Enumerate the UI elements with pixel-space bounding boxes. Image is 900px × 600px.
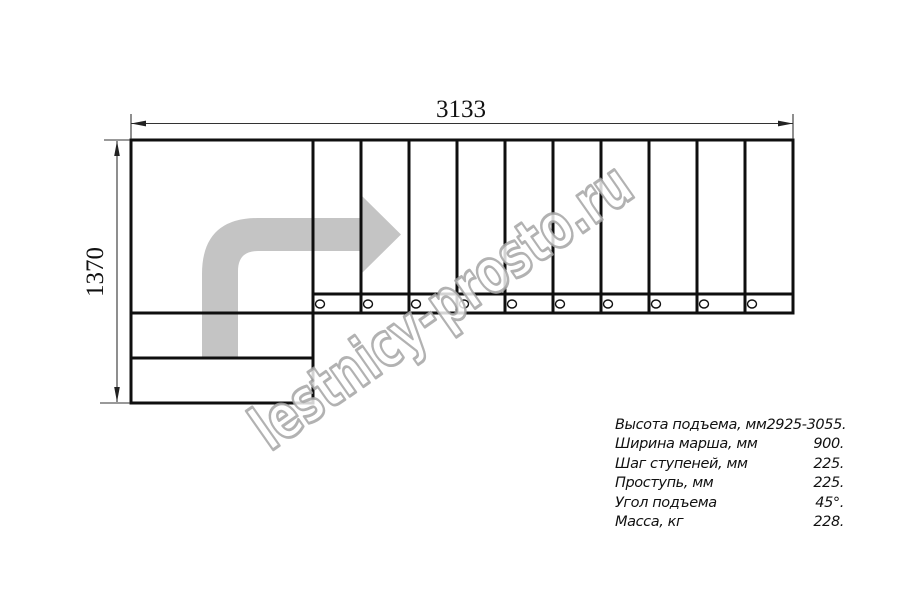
width-dimension-label: 3133 xyxy=(436,96,486,123)
fastener-circle xyxy=(748,300,757,308)
spec-value: 45°. xyxy=(815,494,844,513)
dim-arrow-right xyxy=(778,121,793,127)
fastener-circle xyxy=(316,300,325,308)
spec-label: Шаг ступеней, мм xyxy=(615,455,748,474)
spec-label: Угол подъема xyxy=(615,494,717,513)
dim-arrow-down xyxy=(114,387,120,402)
dim-arrow-up xyxy=(114,141,120,156)
fastener-circle xyxy=(604,300,613,308)
spec-value: 900. xyxy=(813,435,844,454)
spec-label: Проступь, мм xyxy=(615,474,713,493)
specs-table: Высота подъема, мм 2925-3055. Ширина мар… xyxy=(615,416,844,532)
staircase-plan-canvas: 3133 1370 lestnicy-prosto.ru Высота подъ… xyxy=(0,0,900,600)
spec-row: Ширина марша, мм 900. xyxy=(615,435,844,454)
spec-label: Высота подъема, мм xyxy=(615,416,766,435)
spec-value: 225. xyxy=(813,474,844,493)
spec-row: Высота подъема, мм 2925-3055. xyxy=(615,416,844,435)
spec-row: Угол подъема 45°. xyxy=(615,494,844,513)
spec-value: 228. xyxy=(813,513,844,532)
spec-label: Масса, кг xyxy=(615,513,683,532)
spec-value: 2925-3055. xyxy=(766,416,846,435)
watermark-text: lestnicy-prosto.ru xyxy=(237,148,646,465)
fastener-circle xyxy=(364,300,373,308)
spec-row: Шаг ступеней, мм 225. xyxy=(615,455,844,474)
height-dimension-label: 1370 xyxy=(82,247,109,297)
dim-arrow-left xyxy=(131,121,146,127)
fastener-circle xyxy=(700,300,709,308)
spec-label: Ширина марша, мм xyxy=(615,435,757,454)
fastener-circle xyxy=(652,300,661,308)
spec-value: 225. xyxy=(813,455,844,474)
spec-row: Проступь, мм 225. xyxy=(615,474,844,493)
spec-row: Масса, кг 228. xyxy=(615,513,844,532)
fastener-circle xyxy=(556,300,565,308)
